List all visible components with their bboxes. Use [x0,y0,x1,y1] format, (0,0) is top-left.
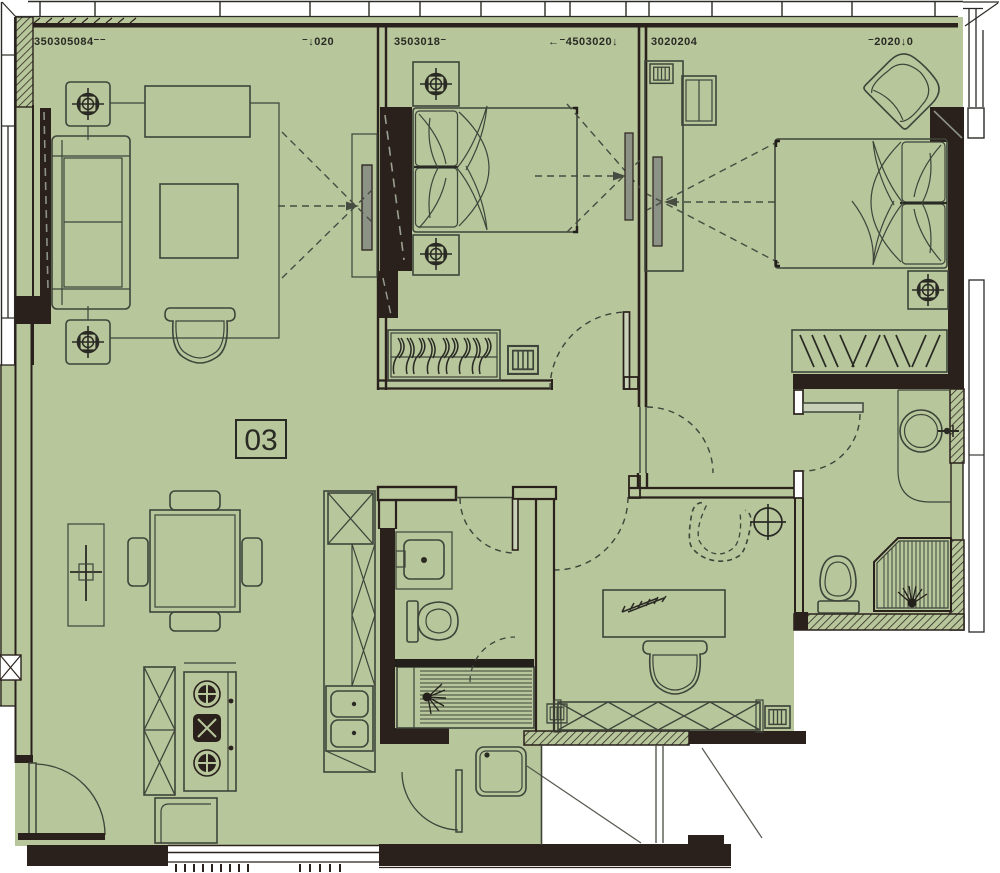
svg-text:03: 03 [244,424,277,457]
svg-text:⁻↓020: ⁻↓020 [302,36,334,48]
svg-text:⁻2020↓0: ⁻2020↓0 [868,36,913,48]
svg-text:350305084⁻⁻: 350305084⁻⁻ [34,36,106,48]
svg-text:3020204: 3020204 [651,36,698,48]
svg-text:3503018⁻: 3503018⁻ [394,36,447,48]
svg-text:←⁻4503020↓: ←⁻4503020↓ [548,36,618,48]
